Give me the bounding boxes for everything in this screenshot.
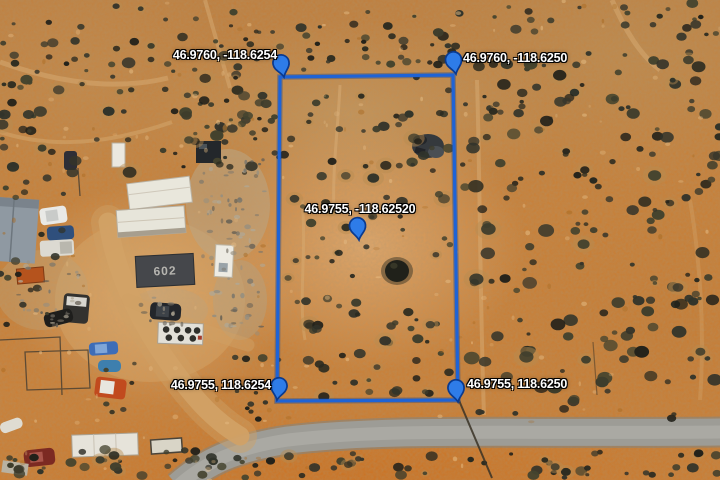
blue-pool — [98, 360, 121, 372]
building-602-label: 602 — [153, 263, 177, 278]
coordinate-label-top-left: 46.9760, -118.6254 — [173, 49, 277, 63]
aerial-scene: 602 — [0, 0, 720, 480]
white-trailer-lower — [116, 206, 186, 238]
equipment-trailer — [158, 322, 204, 345]
gray-roof-building — [0, 196, 39, 263]
coordinate-label-center: 46.9755, -118.62520 — [305, 203, 416, 217]
coordinate-label-bottom-left: 46.9755, 118.6254 — [171, 379, 271, 393]
building-602: 602 — [135, 253, 195, 287]
small-white-shed — [214, 245, 234, 278]
coordinate-label-bottom-right: 46.9755, 118.6250 — [467, 378, 567, 392]
large-bush — [385, 260, 409, 282]
aerial-parcel-photo: 602 — [0, 0, 720, 480]
white-board — [112, 143, 125, 167]
coordinate-label-top-right: 46.9760, -118.6250 — [463, 52, 567, 66]
